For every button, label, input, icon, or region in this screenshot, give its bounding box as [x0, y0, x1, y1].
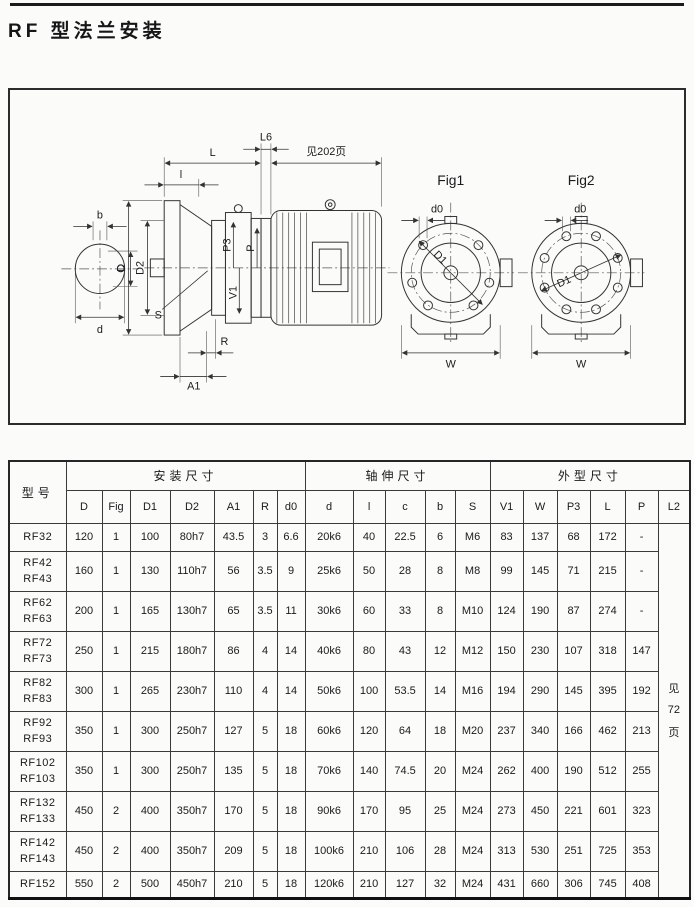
- fig2-title: Fig2: [568, 172, 595, 188]
- value-cell: 300: [130, 711, 170, 751]
- value-cell: 255: [625, 751, 658, 791]
- value-cell: 395: [590, 671, 625, 711]
- value-cell: 210: [353, 871, 385, 898]
- value-cell: 265: [130, 671, 170, 711]
- value-cell: 3: [253, 523, 277, 551]
- column-header-b: b: [425, 490, 455, 523]
- value-cell: 120k6: [305, 871, 353, 898]
- value-cell: 215: [590, 551, 625, 591]
- table-group-header-row: 型号 安装尺寸 轴伸尺寸 外型尺寸: [9, 461, 690, 490]
- technical-drawing: b C d: [8, 88, 686, 425]
- value-cell: 22.5: [385, 523, 425, 551]
- value-cell: 12: [425, 631, 455, 671]
- value-cell: M8: [455, 551, 490, 591]
- value-cell: 20k6: [305, 523, 353, 551]
- table-column-header-row: DFigD1D2A1Rd0dlcbSV1WP3LPL2: [9, 490, 690, 523]
- model-cell: RF152: [9, 871, 66, 898]
- value-cell: 340: [523, 711, 557, 751]
- column-header-r: R: [253, 490, 277, 523]
- value-cell: 40k6: [305, 631, 353, 671]
- value-cell: 100: [130, 523, 170, 551]
- fig2-W-label: W: [576, 359, 587, 371]
- value-cell: 127: [214, 711, 253, 751]
- value-cell: 725: [590, 831, 625, 871]
- value-cell: 5: [253, 751, 277, 791]
- table-row: RF132RF1334502400350h717051890k61709525M…: [9, 791, 690, 831]
- value-cell: 5: [253, 711, 277, 751]
- fig2-D1-label: D1: [555, 274, 573, 291]
- value-cell: 6: [425, 523, 455, 551]
- value-cell: -: [625, 523, 658, 551]
- value-cell: 9: [277, 551, 305, 591]
- model-cell: RF82RF83: [9, 671, 66, 711]
- column-header-d: D: [66, 490, 102, 523]
- table-row: RF72RF732501215180h78641440k6804312M1215…: [9, 631, 690, 671]
- table-row: RF42RF431601130110h7563.5925k650288M8991…: [9, 551, 690, 591]
- value-cell: M20: [455, 711, 490, 751]
- value-cell: 50: [353, 551, 385, 591]
- value-cell: 65: [214, 591, 253, 631]
- value-cell: 4: [253, 671, 277, 711]
- group-header-shaft: 轴伸尺寸: [305, 461, 490, 490]
- value-cell: 99: [490, 551, 523, 591]
- value-cell: -: [625, 551, 658, 591]
- value-cell: -: [625, 591, 658, 631]
- model-cell: RF102RF103: [9, 751, 66, 791]
- value-cell: 18: [277, 751, 305, 791]
- value-cell: M24: [455, 831, 490, 871]
- value-cell: 80h7: [170, 523, 214, 551]
- column-header-d0: d0: [277, 490, 305, 523]
- dim-label-d: d: [97, 324, 103, 336]
- column-header-s: S: [455, 490, 490, 523]
- value-cell: 318: [590, 631, 625, 671]
- table-row: RF62RF632001165130h7653.51130k660338M101…: [9, 591, 690, 631]
- value-cell: 408: [625, 871, 658, 898]
- column-header-d1: D1: [130, 490, 170, 523]
- value-cell: 5: [253, 831, 277, 871]
- value-cell: 53.5: [385, 671, 425, 711]
- value-cell: 25: [425, 791, 455, 831]
- fig1-title: Fig1: [437, 172, 464, 188]
- value-cell: 530: [523, 831, 557, 871]
- value-cell: 80: [353, 631, 385, 671]
- model-cell: RF72RF73: [9, 631, 66, 671]
- value-cell: 221: [557, 791, 590, 831]
- value-cell: 450: [66, 831, 102, 871]
- value-cell: 190: [557, 751, 590, 791]
- value-cell: 262: [490, 751, 523, 791]
- value-cell: 120: [66, 523, 102, 551]
- value-cell: 150: [490, 631, 523, 671]
- value-cell: 210: [214, 871, 253, 898]
- fig1-d0-label: d0: [431, 204, 443, 216]
- value-cell: 50k6: [305, 671, 353, 711]
- model-cell: RF32: [9, 523, 66, 551]
- dim-label-l: l: [180, 169, 182, 181]
- value-cell: 601: [590, 791, 625, 831]
- value-cell: 18: [277, 711, 305, 751]
- table-row: RF142RF1434502400350h7209518100k62101062…: [9, 831, 690, 871]
- table-body: RF32120110080h743.536.620k64022.56M68313…: [9, 523, 690, 898]
- column-header-a1: A1: [214, 490, 253, 523]
- column-header-d: d: [305, 490, 353, 523]
- value-cell: 3.5: [253, 551, 277, 591]
- value-cell: 68: [557, 523, 590, 551]
- value-cell: 230h7: [170, 671, 214, 711]
- value-cell: 160: [66, 551, 102, 591]
- value-cell: 273: [490, 791, 523, 831]
- value-cell: 95: [385, 791, 425, 831]
- value-cell: 350: [66, 711, 102, 751]
- fig2-d0-label: d0: [574, 204, 586, 216]
- value-cell: 1: [102, 751, 130, 791]
- value-cell: 194: [490, 671, 523, 711]
- value-cell: 107: [557, 631, 590, 671]
- value-cell: 33: [385, 591, 425, 631]
- value-cell: 18: [277, 871, 305, 898]
- dim-label-L: L: [210, 147, 216, 159]
- value-cell: 127: [385, 871, 425, 898]
- table-row: RF1525502500450h7210518120k621012732M244…: [9, 871, 690, 898]
- value-cell: 83: [490, 523, 523, 551]
- value-cell: 1: [102, 631, 130, 671]
- value-cell: 1: [102, 551, 130, 591]
- fig2-view: Fig2 d0 D1: [518, 172, 644, 371]
- dim-label-P3: P3: [221, 238, 233, 251]
- value-cell: M10: [455, 591, 490, 631]
- group-header-mounting: 安装尺寸: [66, 461, 305, 490]
- value-cell: M6: [455, 523, 490, 551]
- value-cell: 660: [523, 871, 557, 898]
- value-cell: 170: [353, 791, 385, 831]
- value-cell: 71: [557, 551, 590, 591]
- value-cell: 350h7: [170, 831, 214, 871]
- value-cell: 8: [425, 591, 455, 631]
- value-cell: 1: [102, 523, 130, 551]
- value-cell: 140: [353, 751, 385, 791]
- gearmotor-side-view: [144, 200, 389, 335]
- value-cell: 1: [102, 711, 130, 751]
- value-cell: 462: [590, 711, 625, 751]
- value-cell: 353: [625, 831, 658, 871]
- value-cell: M24: [455, 871, 490, 898]
- value-cell: 43.5: [214, 523, 253, 551]
- bottom-dimensions: S A1 R: [155, 271, 234, 393]
- column-header-c: c: [385, 490, 425, 523]
- value-cell: 100k6: [305, 831, 353, 871]
- value-cell: M16: [455, 671, 490, 711]
- value-cell: 170: [214, 791, 253, 831]
- value-cell: 106: [385, 831, 425, 871]
- value-cell: 43: [385, 631, 425, 671]
- value-cell: 28: [425, 831, 455, 871]
- value-cell: 450: [66, 791, 102, 831]
- table-row: RF82RF833001265230h711041450k610053.514M…: [9, 671, 690, 711]
- value-cell: 11: [277, 591, 305, 631]
- value-cell: 124: [490, 591, 523, 631]
- value-cell: 1: [102, 671, 130, 711]
- value-cell: 200: [66, 591, 102, 631]
- column-header-fig: Fig: [102, 490, 130, 523]
- value-cell: 87: [557, 591, 590, 631]
- fig1-D1-label: D1: [431, 249, 449, 267]
- dim-label-S: S: [155, 309, 162, 321]
- value-cell: 32: [425, 871, 455, 898]
- value-cell: 250h7: [170, 711, 214, 751]
- table-row: RF32120110080h743.536.620k64022.56M68313…: [9, 523, 690, 551]
- value-cell: 290: [523, 671, 557, 711]
- column-header-p: P: [625, 490, 658, 523]
- value-cell: 5: [253, 871, 277, 898]
- value-cell: 18: [277, 831, 305, 871]
- column-header-l2: L2: [658, 490, 690, 523]
- value-cell: 6.6: [277, 523, 305, 551]
- value-cell: 100: [353, 671, 385, 711]
- value-cell: 56: [214, 551, 253, 591]
- column-header-l: L: [590, 490, 625, 523]
- value-cell: 250: [66, 631, 102, 671]
- value-cell: 210: [353, 831, 385, 871]
- value-cell: 431: [490, 871, 523, 898]
- value-cell: 251: [557, 831, 590, 871]
- value-cell: 90k6: [305, 791, 353, 831]
- value-cell: 130h7: [170, 591, 214, 631]
- value-cell: 215: [130, 631, 170, 671]
- value-cell: 450h7: [170, 871, 214, 898]
- see-page-202-note: 见202页: [306, 146, 346, 158]
- fig1-view: Fig1 d0 D1 W: [388, 172, 514, 371]
- l2-note-cell: 见72页: [658, 523, 690, 898]
- value-cell: 192: [625, 671, 658, 711]
- value-cell: 165: [130, 591, 170, 631]
- value-cell: 145: [557, 671, 590, 711]
- value-cell: 25k6: [305, 551, 353, 591]
- column-header-l: l: [353, 490, 385, 523]
- value-cell: 450: [523, 791, 557, 831]
- value-cell: 745: [590, 871, 625, 898]
- value-cell: 147: [625, 631, 658, 671]
- model-cell: RF42RF43: [9, 551, 66, 591]
- value-cell: 2: [102, 791, 130, 831]
- value-cell: 14: [425, 671, 455, 711]
- fig1-W-label: W: [446, 359, 457, 371]
- value-cell: 250h7: [170, 751, 214, 791]
- value-cell: 145: [523, 551, 557, 591]
- value-cell: 400: [130, 791, 170, 831]
- value-cell: 4: [253, 631, 277, 671]
- dim-label-P: P: [245, 244, 257, 251]
- column-header-v1: V1: [490, 490, 523, 523]
- value-cell: 5: [253, 791, 277, 831]
- value-cell: 8: [425, 551, 455, 591]
- value-cell: 213: [625, 711, 658, 751]
- dimension-table: 型号 安装尺寸 轴伸尺寸 外型尺寸 DFigD1D2A1Rd0dlcbSV1WP…: [8, 460, 691, 900]
- value-cell: M24: [455, 751, 490, 791]
- model-cell: RF62RF63: [9, 591, 66, 631]
- value-cell: 60k6: [305, 711, 353, 751]
- value-cell: 550: [66, 871, 102, 898]
- value-cell: 110: [214, 671, 253, 711]
- dim-label-D2: D2: [134, 261, 146, 275]
- model-cell: RF142RF143: [9, 831, 66, 871]
- dim-label-b: b: [97, 209, 103, 221]
- value-cell: 180h7: [170, 631, 214, 671]
- model-column-header: 型号: [9, 461, 66, 523]
- value-cell: 18: [425, 711, 455, 751]
- value-cell: 400: [130, 831, 170, 871]
- value-cell: 14: [277, 671, 305, 711]
- drawing-canvas: b C d: [10, 90, 684, 423]
- value-cell: 166: [557, 711, 590, 751]
- value-cell: 172: [590, 523, 625, 551]
- dim-label-V1: V1: [227, 286, 239, 299]
- model-cell: RF132RF133: [9, 791, 66, 831]
- value-cell: 350: [66, 751, 102, 791]
- value-cell: 274: [590, 591, 625, 631]
- value-cell: 2: [102, 871, 130, 898]
- value-cell: 350h7: [170, 791, 214, 831]
- value-cell: 70k6: [305, 751, 353, 791]
- value-cell: 64: [385, 711, 425, 751]
- page-top-rule: [10, 3, 684, 6]
- value-cell: 30k6: [305, 591, 353, 631]
- value-cell: 512: [590, 751, 625, 791]
- value-cell: 135: [214, 751, 253, 791]
- value-cell: 18: [277, 791, 305, 831]
- column-header-w: W: [523, 490, 557, 523]
- value-cell: 300: [66, 671, 102, 711]
- value-cell: 323: [625, 791, 658, 831]
- dim-label-R: R: [221, 336, 229, 348]
- value-cell: 300: [130, 751, 170, 791]
- value-cell: 86: [214, 631, 253, 671]
- page-title: RF 型法兰安装: [8, 16, 166, 43]
- value-cell: 3.5: [253, 591, 277, 631]
- group-header-outline: 外型尺寸: [490, 461, 690, 490]
- value-cell: M24: [455, 791, 490, 831]
- table-row: RF92RF933501300250h712751860k61206418M20…: [9, 711, 690, 751]
- value-cell: 190: [523, 591, 557, 631]
- dim-label-D: D: [116, 264, 128, 272]
- value-cell: 230: [523, 631, 557, 671]
- value-cell: 74.5: [385, 751, 425, 791]
- value-cell: 110h7: [170, 551, 214, 591]
- value-cell: 130: [130, 551, 170, 591]
- value-cell: 20: [425, 751, 455, 791]
- value-cell: 60: [353, 591, 385, 631]
- value-cell: 2: [102, 831, 130, 871]
- value-cell: 28: [385, 551, 425, 591]
- value-cell: 137: [523, 523, 557, 551]
- value-cell: 209: [214, 831, 253, 871]
- column-header-d2: D2: [170, 490, 214, 523]
- dim-label-A1: A1: [187, 380, 200, 392]
- value-cell: 306: [557, 871, 590, 898]
- value-cell: 120: [353, 711, 385, 751]
- value-cell: 40: [353, 523, 385, 551]
- value-cell: 313: [490, 831, 523, 871]
- value-cell: 14: [277, 631, 305, 671]
- value-cell: M12: [455, 631, 490, 671]
- value-cell: 400: [523, 751, 557, 791]
- column-header-p3: P3: [557, 490, 590, 523]
- value-cell: 237: [490, 711, 523, 751]
- model-cell: RF92RF93: [9, 711, 66, 751]
- value-cell: 500: [130, 871, 170, 898]
- value-cell: 1: [102, 591, 130, 631]
- dim-label-L6: L6: [260, 131, 272, 143]
- table-row: RF102RF1033501300250h713551870k614074.52…: [9, 751, 690, 791]
